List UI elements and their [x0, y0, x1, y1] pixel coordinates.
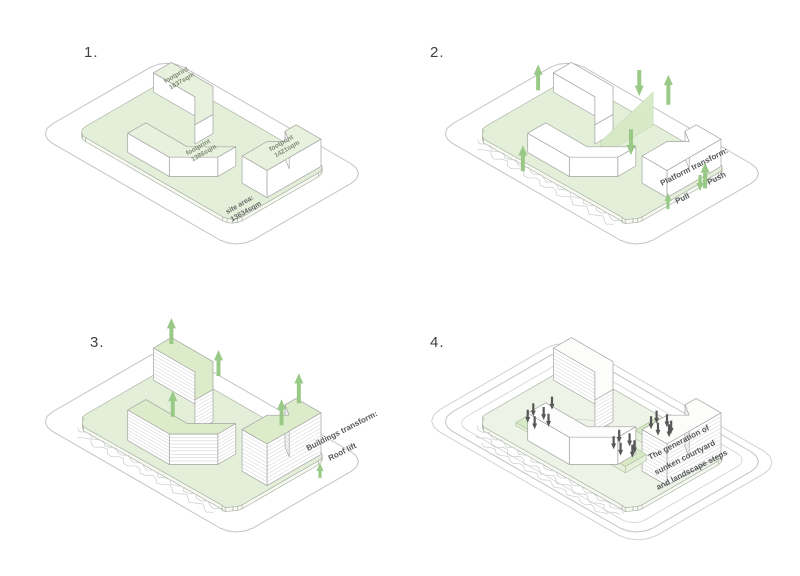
roof-lift-legend-label: Roof lift [327, 441, 358, 463]
building-b-side [569, 437, 618, 464]
panel-1: 1. footprint1637sqmfootprint1386sqmfootp… [0, 0, 400, 288]
panel-4: 4. The generation ofsunken courtyardand … [400, 288, 800, 576]
pull-arrow-icon [534, 64, 543, 90]
site-platform-side [633, 219, 638, 223]
site-platform-side [633, 507, 638, 511]
panel-1-number: 1. [84, 44, 99, 61]
pull-arrow-icon [664, 75, 673, 105]
panel-3: 3. Buildings transform:Roof lift [0, 288, 400, 576]
diagram-canvas: 1. footprint1637sqmfootprint1386sqmfootp… [0, 0, 800, 576]
panel-4-number: 4. [430, 334, 445, 351]
label-line: Roof lift [327, 441, 358, 463]
roof-lift-arrow-icon [214, 350, 223, 376]
panel-3-number: 3. [90, 334, 105, 351]
massing-diagram-platform-transform: Platform transform:PullPush [400, 0, 800, 288]
massing-diagram-existing: footprint1637sqmfootprint1386sqmfootprin… [0, 0, 400, 288]
panel-2: 2. Platform transform:PullPush [400, 0, 800, 288]
building-b-side [169, 434, 218, 464]
massing-diagram-sunken-courtyard: The generation ofsunken courtyardand lan… [400, 288, 800, 576]
push-arrow-icon [635, 70, 644, 96]
site-platform-side [233, 507, 238, 511]
massing-diagram-buildings-transform: Buildings transform:Roof lift [0, 288, 400, 576]
panel-2-number: 2. [430, 44, 445, 61]
building-b-side [569, 157, 618, 176]
